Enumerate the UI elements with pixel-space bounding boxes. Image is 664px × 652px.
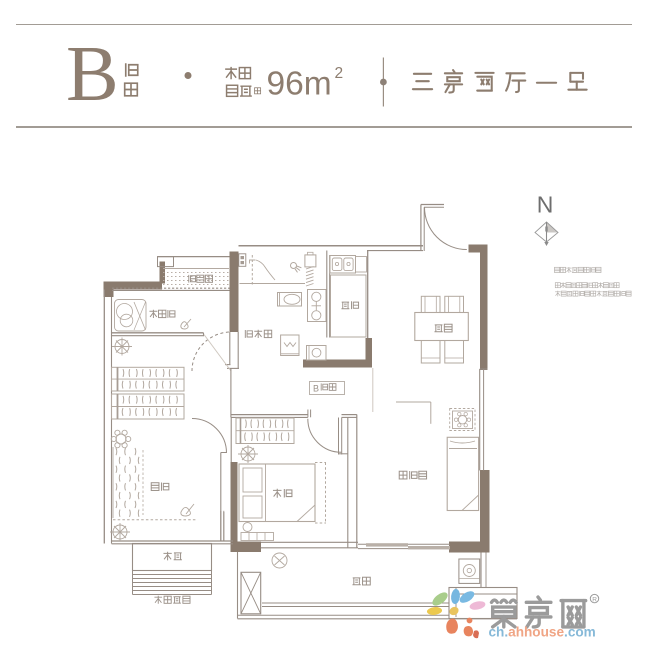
svg-text:96m: 96m [267,66,332,103]
svg-text:B: B [313,384,319,394]
svg-text:N: N [537,192,554,218]
svg-text:2: 2 [335,65,344,82]
svg-text:B: B [66,31,119,118]
svg-text:R: R [592,596,597,603]
svg-text:ch.ahhouse.com: ch.ahhouse.com [489,625,596,640]
